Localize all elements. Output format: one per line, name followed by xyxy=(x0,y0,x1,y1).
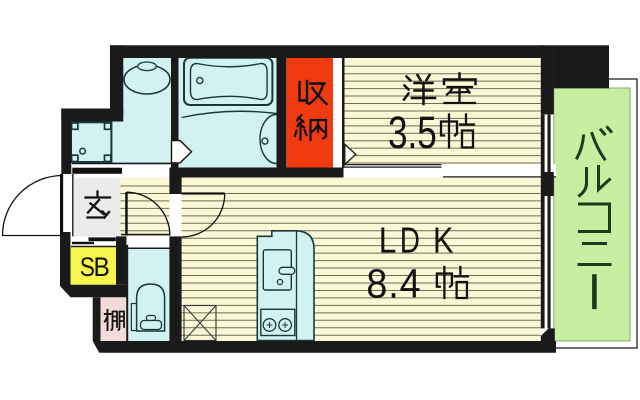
svg-text:D: D xyxy=(400,220,420,260)
svg-text:K: K xyxy=(433,221,453,261)
svg-text:8.4: 8.4 xyxy=(366,261,421,307)
svg-text:B: B xyxy=(94,253,110,282)
svg-text:L: L xyxy=(379,220,397,260)
svg-text:3.5: 3.5 xyxy=(388,107,437,158)
